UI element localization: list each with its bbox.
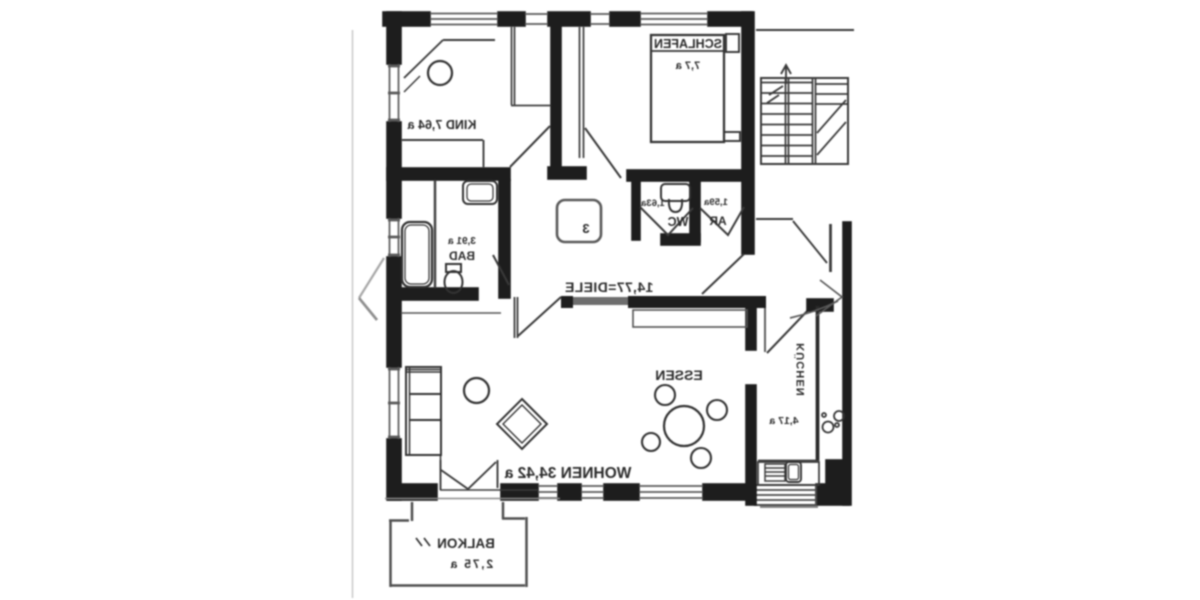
svg-text:WOHNEN 34,42 a: WOHNEN 34,42 a [504,465,631,482]
svg-text:3,91 a: 3,91 a [448,236,476,247]
svg-text:KIND 7,64 a: KIND 7,64 a [407,118,477,132]
svg-text:BALKON: BALKON [437,536,495,551]
svg-text:7,7 a: 7,7 a [675,60,700,72]
svg-text:WC: WC [668,215,689,229]
svg-text:BAD: BAD [449,249,475,263]
svg-text:1,59a: 1,59a [703,197,727,208]
svg-text:2,75 a: 2,75 a [449,557,493,571]
svg-text:SCHLAFEN: SCHLAFEN [654,37,722,51]
svg-text:14,77=DIELE: 14,77=DIELE [565,279,654,295]
svg-text:4,17 a: 4,17 a [769,415,798,427]
svg-text:KÜCHEN: KÜCHEN [794,343,807,397]
svg-text:1,63a: 1,63a [640,198,664,209]
svg-text:3: 3 [582,221,589,236]
svg-text:ESSEN: ESSEN [655,367,702,383]
svg-text:AR: AR [709,214,727,228]
